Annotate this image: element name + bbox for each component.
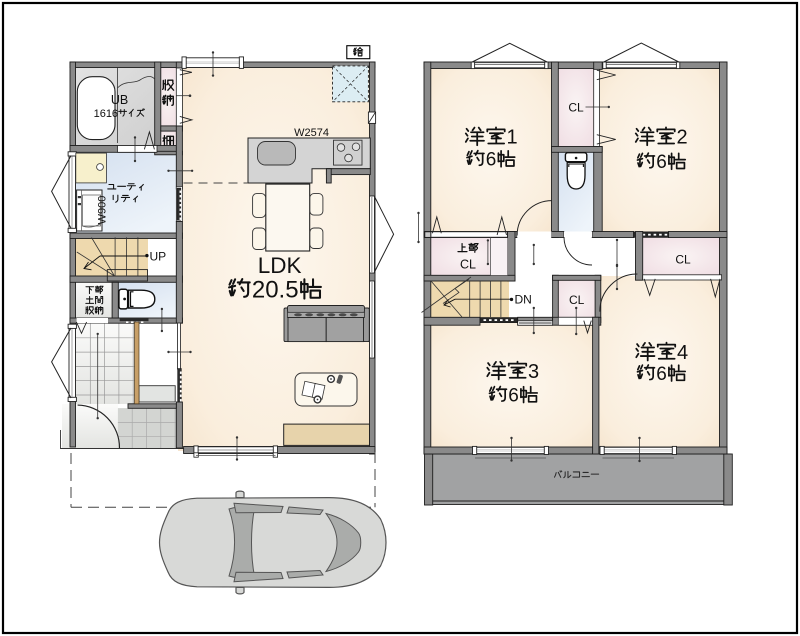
svg-text:LDK: LDK <box>258 253 302 278</box>
svg-text:6: 6 <box>656 364 667 385</box>
svg-text:20.5: 20.5 <box>252 277 299 304</box>
svg-text:CL: CL <box>675 252 691 266</box>
svg-text:UB: UB <box>111 93 128 107</box>
svg-text:DN: DN <box>515 293 532 307</box>
svg-text:CL: CL <box>568 101 584 115</box>
svg-text:6: 6 <box>656 152 667 173</box>
svg-text:1: 1 <box>507 127 518 149</box>
svg-text:W2574: W2574 <box>294 127 329 139</box>
svg-text:6: 6 <box>486 150 497 171</box>
svg-text:CL: CL <box>569 293 585 307</box>
svg-text:W900: W900 <box>97 196 109 225</box>
svg-text:3: 3 <box>528 361 539 383</box>
svg-text:4: 4 <box>677 342 688 364</box>
svg-text:CL: CL <box>460 257 476 271</box>
svg-text:UP: UP <box>150 250 167 264</box>
svg-text:1616: 1616 <box>94 108 118 120</box>
svg-text:2: 2 <box>677 127 688 149</box>
svg-text:6: 6 <box>508 385 519 406</box>
